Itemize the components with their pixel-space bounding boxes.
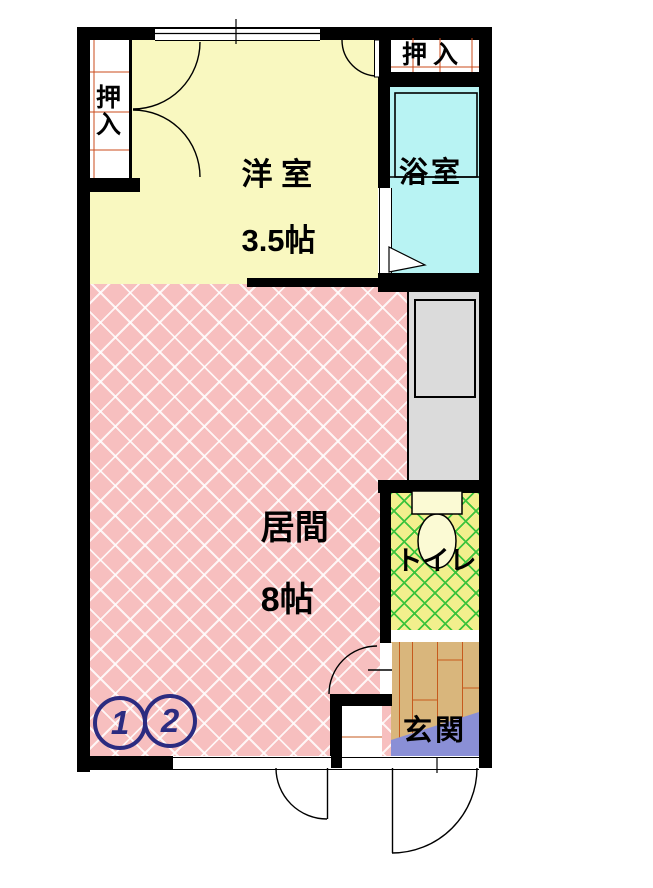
unit-marker-2: 2 — [143, 694, 197, 748]
door-leaves — [328, 40, 393, 853]
living-room-name: 居間 — [261, 509, 329, 547]
kitchen-fixture — [415, 300, 475, 397]
floor-plan: 押入 押入 洋 室 3.5帖 浴室 居間 8帖 トイレ 玄関 1 2 — [0, 0, 653, 888]
bathroom-label: 浴室 — [399, 158, 463, 189]
front-door-arc — [392, 768, 477, 853]
closet-top-right-label: 押入 — [402, 42, 464, 69]
toilet-label: トイレ — [392, 547, 480, 576]
western-room-door-arc — [342, 40, 378, 76]
entrance-label: 玄関 — [403, 716, 467, 747]
unit-marker-1: 1 — [93, 696, 147, 750]
living-room-size: 8帖 — [261, 581, 314, 619]
closet-left-label: 押入 — [93, 84, 120, 138]
western-room-size: 3.5帖 — [241, 223, 315, 258]
living-room-label: 居間 8帖 — [223, 474, 329, 654]
unit-marker-2-number: 2 — [161, 702, 179, 740]
closet-door-arc-lower — [133, 110, 200, 177]
terrace-door-arc — [276, 768, 327, 819]
western-room-name: 洋 室 — [241, 157, 312, 192]
bathroom-folding-door — [389, 247, 425, 272]
unit-marker-1-number: 1 — [111, 704, 129, 742]
closet-door-arc-upper — [133, 42, 200, 109]
western-room-label: 洋 室 3.5帖 — [207, 126, 316, 290]
